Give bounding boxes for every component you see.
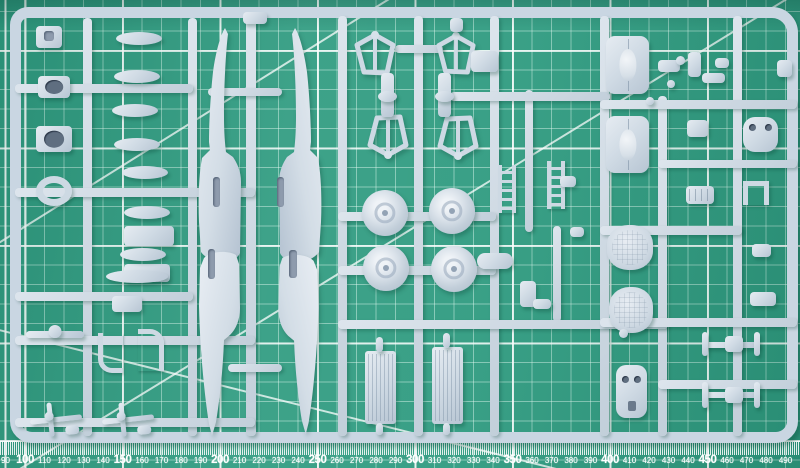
prop-hub — [49, 325, 62, 338]
radiator-core — [432, 347, 463, 424]
bomb-6 — [124, 206, 170, 219]
sprue-gate — [443, 423, 450, 435]
sprue-gate — [376, 423, 383, 435]
ring-mount-1 — [38, 76, 70, 98]
fuselage-svg — [197, 250, 247, 445]
wheel-hub-dot — [449, 208, 455, 214]
bomb-7 — [120, 248, 166, 261]
sprue-runner — [414, 16, 423, 436]
photo-model-kit-sprue-on-cutting-mat: 9010011012013014015016017018019020021022… — [0, 0, 800, 468]
bolt-hole — [749, 124, 756, 131]
small-part — [752, 244, 771, 257]
sprue-runner — [525, 90, 533, 232]
fuselage-half-tail-down-right — [271, 253, 321, 443]
gun-stock — [137, 425, 152, 435]
sprue-runner — [338, 16, 347, 436]
fuselage-svg — [272, 28, 324, 263]
cushion-texture — [614, 292, 648, 328]
panel-bulge — [619, 129, 636, 160]
engine-block — [686, 186, 714, 204]
sprue-stub — [450, 18, 463, 32]
fuselage-half-tail-down-left — [197, 250, 247, 445]
strut-frame — [436, 115, 480, 159]
exhaust-pipe — [138, 329, 164, 371]
small-bracket — [533, 299, 551, 309]
bomb-5 — [122, 166, 168, 179]
ring-mount-2 — [36, 126, 72, 152]
strut-end-plate — [702, 382, 708, 408]
strut-end-plate — [754, 382, 760, 408]
ring-hole — [44, 131, 64, 148]
sprue-gate — [443, 333, 450, 348]
gun-ring — [36, 176, 72, 206]
fuselage-svg — [271, 253, 321, 443]
strut-center-block — [725, 336, 743, 351]
wheel — [429, 188, 475, 234]
sprue-runner — [450, 92, 610, 101]
strut-frame-svg — [366, 114, 410, 158]
bomb-3 — [112, 104, 158, 117]
small-part — [715, 58, 729, 68]
block-1 — [124, 226, 174, 246]
strut-end-plate — [702, 332, 708, 356]
panel-bulge — [619, 49, 636, 81]
u-bracket — [743, 181, 769, 205]
cushion-texture — [612, 230, 648, 265]
small-knob — [646, 97, 654, 105]
fuselage-half-tail-up-left — [197, 28, 247, 263]
gun-stock — [65, 425, 80, 435]
seat-cushion — [607, 225, 653, 270]
bomb-4 — [114, 138, 160, 151]
edge-part — [777, 60, 792, 77]
wheel — [431, 246, 477, 292]
oleo-leg — [381, 73, 394, 117]
small-knob — [667, 80, 675, 88]
small-part — [560, 176, 576, 187]
cockpit-slot — [208, 249, 215, 279]
machine-gun — [28, 397, 84, 440]
sprue-runner — [600, 100, 797, 109]
engine-ribs — [689, 189, 711, 201]
intake-cap — [471, 51, 498, 72]
oleo-leg — [438, 73, 451, 117]
small-part — [688, 52, 701, 77]
seat-opening — [44, 31, 54, 41]
exhaust-pipe — [98, 333, 123, 373]
bolt-hole — [765, 124, 772, 131]
anchor-part — [112, 296, 142, 312]
bomb-1 — [116, 32, 162, 45]
drop-tank — [106, 270, 168, 283]
firewall-notch — [628, 401, 636, 411]
fuselage-svg — [197, 28, 247, 263]
strut-frame-svg — [353, 32, 397, 76]
wheel — [362, 190, 408, 236]
small-part — [570, 227, 584, 237]
wheel-hub-dot — [383, 265, 389, 271]
wing-strut-assembly — [702, 332, 760, 356]
seat-cushion — [609, 287, 653, 333]
radiator-core — [365, 351, 396, 424]
exhaust-fairing — [477, 253, 513, 269]
cockpit-slot — [213, 177, 220, 207]
small-knob — [619, 329, 628, 338]
cowling-panel — [606, 36, 649, 94]
strut-frame-svg — [436, 115, 480, 159]
cowl-front — [743, 117, 778, 152]
cockpit-slot — [277, 177, 284, 207]
boarding-ladder — [498, 165, 516, 213]
firewall — [616, 365, 647, 418]
fuselage-half-tail-up-right — [272, 28, 324, 263]
strut-center-block — [725, 387, 743, 404]
radiator-fins — [368, 354, 393, 421]
strut-frame — [353, 32, 397, 76]
bolt-hole — [634, 376, 641, 383]
radiator-fins — [435, 350, 460, 421]
cockpit-slot — [289, 250, 297, 278]
sprue-runner — [83, 18, 92, 436]
small-part — [702, 73, 725, 83]
bolt-hole — [622, 376, 629, 383]
wing-strut-assembly — [702, 382, 760, 408]
wheel — [363, 245, 409, 291]
sprue-runner — [658, 160, 797, 168]
ring-hole — [45, 80, 63, 94]
sprue-runner — [246, 14, 256, 436]
wheel-hub-dot — [451, 266, 457, 272]
strut-end-plate — [754, 332, 760, 356]
bomb-2 — [114, 70, 160, 83]
wheel-hub-dot — [382, 210, 388, 216]
small-knob — [676, 56, 685, 65]
sprue — [0, 0, 800, 468]
strut-frame — [366, 114, 410, 158]
cowling-panel — [606, 116, 649, 173]
sprue-runner — [15, 292, 193, 301]
hatch-part — [687, 120, 708, 137]
sprue-runner — [553, 226, 561, 322]
sprue-runner — [490, 16, 499, 436]
sprue-runner — [188, 18, 197, 436]
sprue-stub — [243, 12, 267, 24]
sprue-gate — [376, 337, 383, 352]
propeller-blade-pair — [26, 327, 84, 340]
pilot-seat — [36, 26, 62, 48]
small-part — [750, 292, 776, 306]
machine-gun — [100, 397, 156, 440]
gun-barrel — [102, 414, 154, 424]
gun-barrel — [30, 414, 82, 424]
